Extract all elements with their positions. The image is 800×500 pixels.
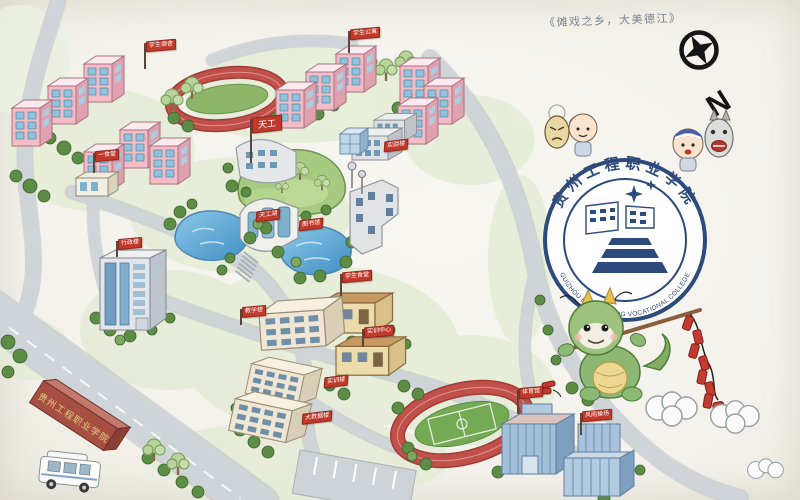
admin-building <box>100 250 166 330</box>
college-logo: 贵州工程职业学院 GUIZHOU ENGINEERING VOCATIONAL … <box>545 155 705 320</box>
pond-left <box>175 211 248 260</box>
curved-building-west-of-hill <box>236 140 296 183</box>
compass-needle <box>677 28 720 71</box>
s-shaped-building <box>350 180 398 254</box>
shuttle-van <box>38 450 102 494</box>
training-center-building <box>336 337 406 375</box>
small-canteen-building <box>76 172 118 196</box>
compass: N <box>677 28 736 123</box>
campus-map: 贵州工程职业学院 N 贵州工程职业学院 GUIZHOU ENGINEERING … <box>0 0 800 500</box>
compass-n-label: N <box>701 84 737 123</box>
mask-character-right <box>673 110 733 171</box>
campus-map-illustration: 贵州工程职业学院 N 贵州工程职业学院 GUIZHOU ENGINEERING … <box>0 0 800 500</box>
glass-cube-building <box>340 128 368 154</box>
mask-character-left <box>545 105 597 156</box>
